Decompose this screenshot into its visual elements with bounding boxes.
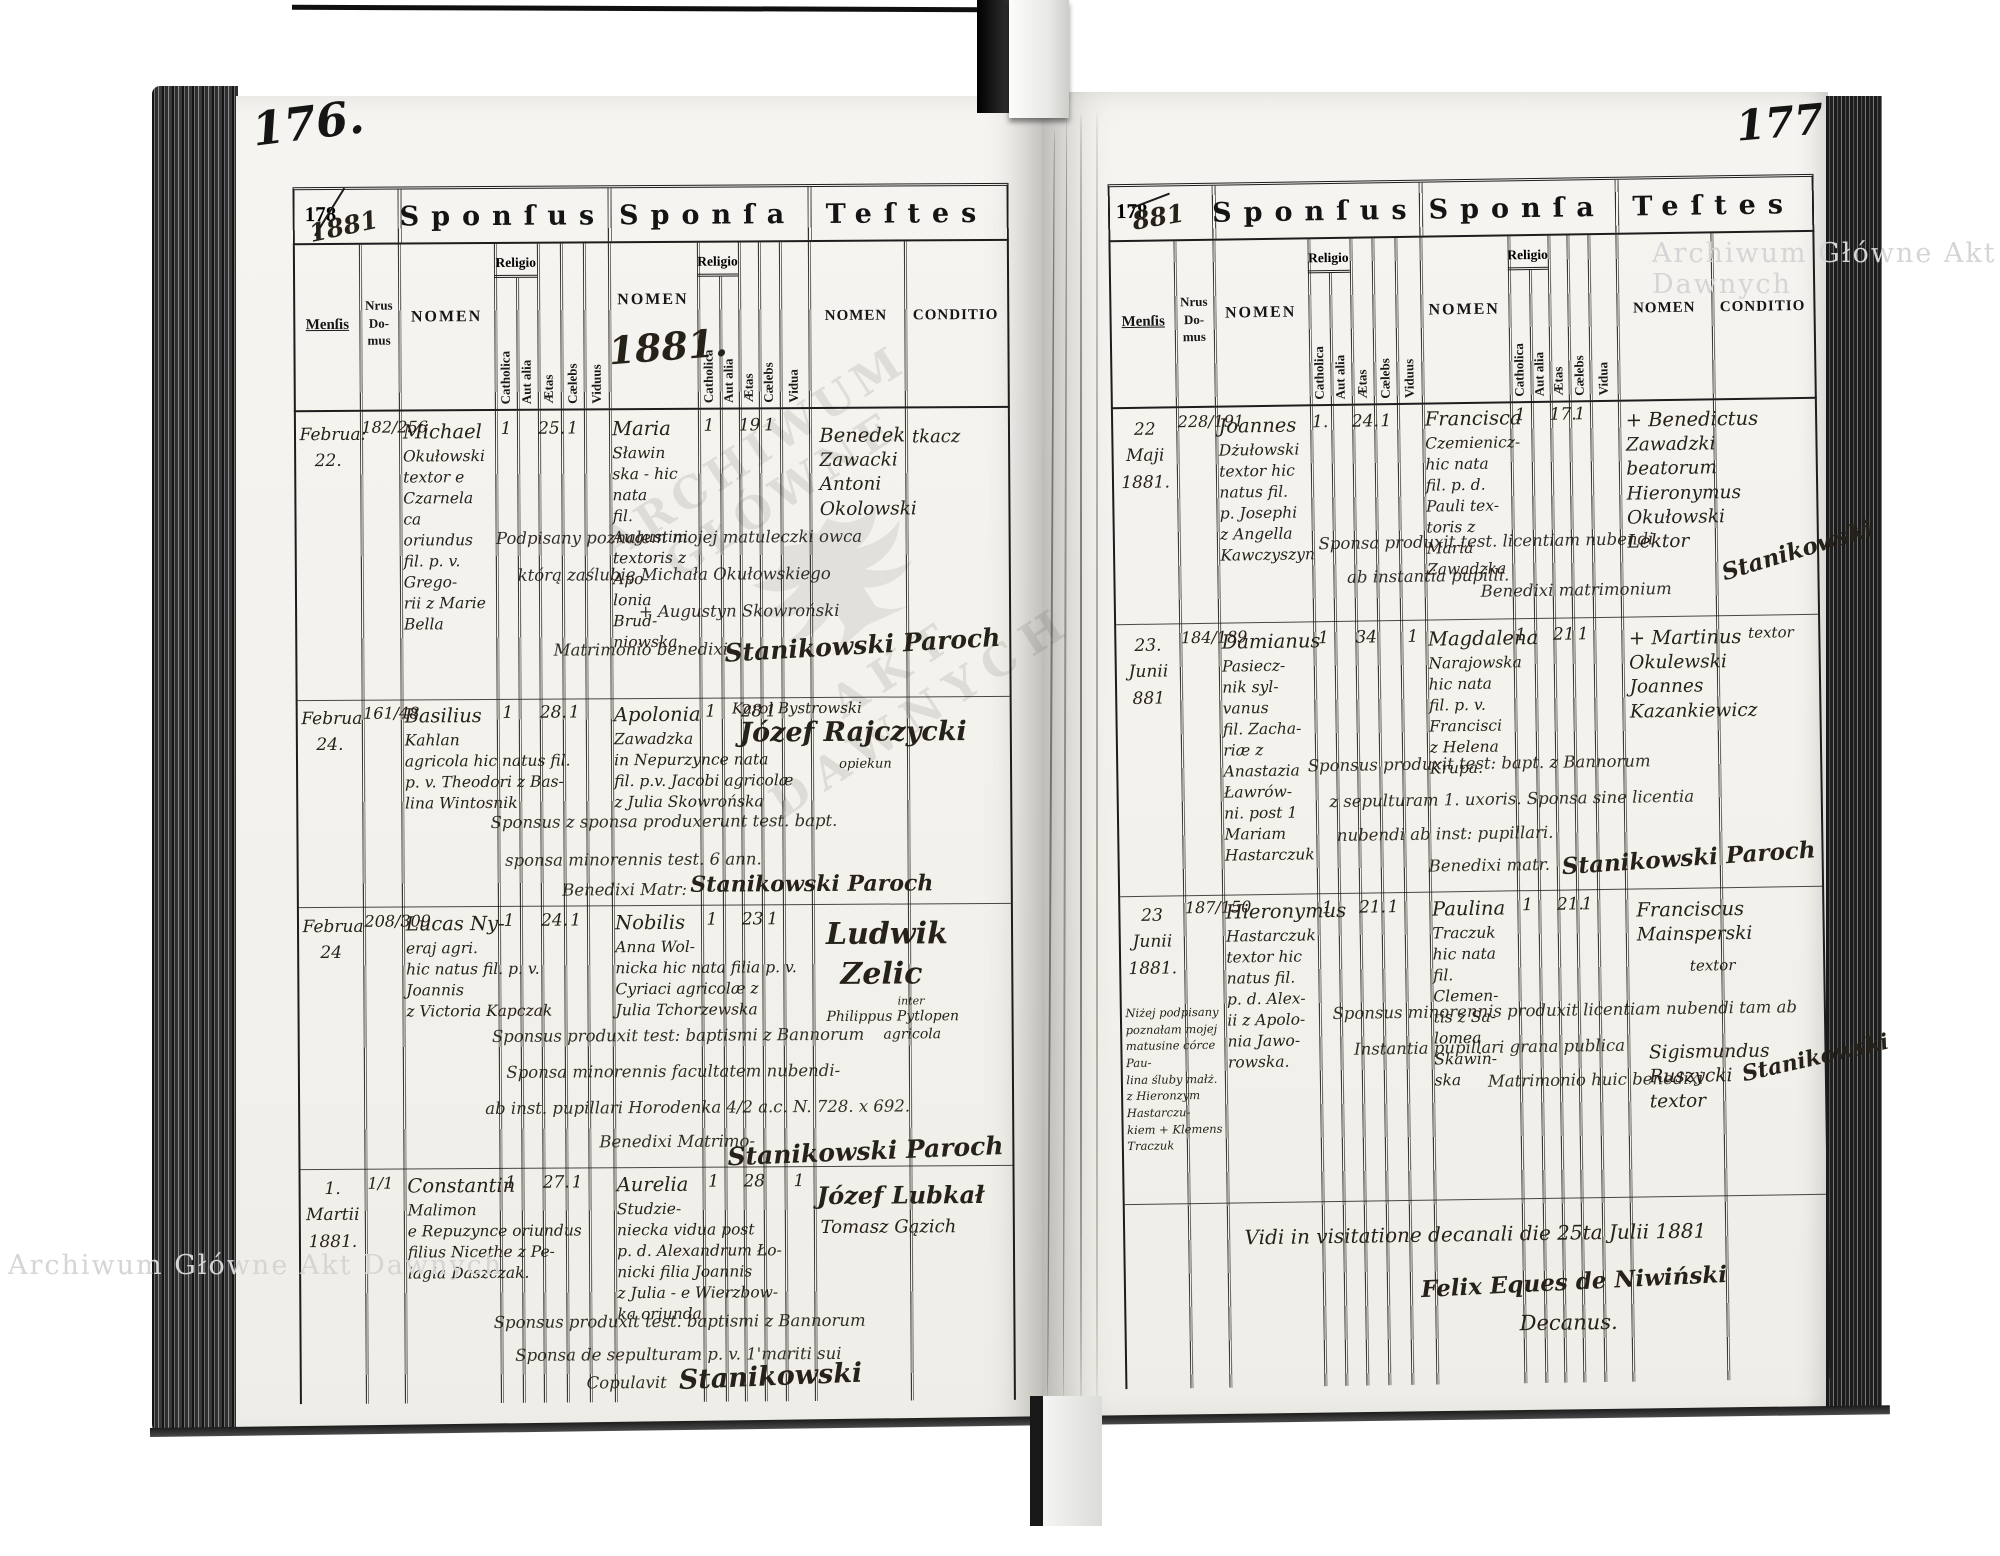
entry-house-number: 161/48 bbox=[363, 704, 400, 723]
left-page: 178 1881 Sponſus Sponſa Teſtes Menſis Nr… bbox=[292, 98, 1016, 1422]
aetas-sponsus-label: Ætas bbox=[1354, 370, 1370, 399]
religio-sponsa-label: Religio bbox=[1507, 238, 1547, 271]
left-corner-cell: 178 1881 bbox=[295, 190, 399, 244]
entry-sponsus: Damianus Pasiecz- nik syl- vanus fil. Za… bbox=[1221, 628, 1314, 867]
book-left-page-edges bbox=[152, 86, 238, 1438]
marginal-note: z sepulturam 1. uxoris. Sponsa sine lice… bbox=[1329, 787, 1694, 811]
mark-aetas-sponsa: 23 bbox=[742, 909, 762, 929]
photo-background bbox=[137, 1413, 1902, 1556]
dean-title: Decanus. bbox=[1519, 1310, 1617, 1335]
viduus-label: Viduus bbox=[588, 364, 604, 403]
nomen-sponsus-label: NOMEN bbox=[398, 308, 494, 327]
column-rule bbox=[398, 245, 402, 410]
vidua-label: Vidua bbox=[1596, 361, 1612, 395]
caelebs-sponsa-label: Cælebs bbox=[761, 362, 777, 403]
catholica-label: Catholica bbox=[1511, 343, 1528, 397]
priest-signature: Stanikowski Paroch bbox=[690, 870, 933, 897]
mark-aetas-sponsus: 27. bbox=[543, 1173, 566, 1193]
house-number-label: Nrus Do- mus bbox=[359, 297, 398, 350]
entry-sponsus: Michael Okułowski textor e Czarnela ca o… bbox=[403, 419, 495, 636]
mark-vidua-sponsa: 1 bbox=[785, 1171, 814, 1191]
marginal-note: Sponsus produxit test: baptismi z Bannor… bbox=[492, 1025, 864, 1046]
mark-caelebs-sponsa: 1 bbox=[1569, 404, 1590, 424]
mark-catholica-sponsa: 1. bbox=[1513, 625, 1534, 645]
entry-testes-signature: Ludwik bbox=[826, 916, 948, 952]
nomen-testes-label: NOMEN bbox=[1617, 299, 1712, 317]
marginal-note: Sponsus minorennis produxit licentiam nu… bbox=[1332, 997, 1797, 1023]
mark-catholica-sponsus: 1 bbox=[1317, 898, 1338, 918]
caelebs-sponsus-label: Cælebs bbox=[1377, 358, 1394, 399]
aetas-sponsa-label: Ætas bbox=[1551, 367, 1567, 396]
mark-aetas-sponsus: 34 bbox=[1355, 627, 1378, 647]
photo-top-edge bbox=[292, 5, 982, 12]
mark-catholica-sponsa: 1 bbox=[1510, 405, 1531, 425]
mark-aetas-sponsus: 28. bbox=[540, 703, 563, 723]
margin-declaration-note: Niżej podpisany poznałam mojej matusine … bbox=[1125, 1004, 1224, 1155]
right-corner-cell: 178 881 bbox=[1110, 186, 1213, 241]
mark-catholica-sponsus: 1 bbox=[498, 911, 519, 931]
marginal-note: ab inst. pupillari Horodenka 4/2 a.c. N.… bbox=[485, 1096, 910, 1118]
religio-sponsus-label: Religio bbox=[494, 246, 537, 278]
marginal-note: nubendi ab inst: pupillari. bbox=[1337, 823, 1554, 845]
left-header-band: 178 1881 Sponſus Sponſa Teſtes bbox=[292, 183, 1008, 245]
testes-header: Teſtes bbox=[807, 198, 1007, 230]
mark-caelebs-sponsus: 1 bbox=[565, 1172, 589, 1192]
sponsa-header: Sponſa bbox=[1419, 192, 1616, 226]
mark-catholica-sponsa: 1 bbox=[1517, 895, 1538, 915]
mark-catholica-sponsa: 1 bbox=[703, 1172, 724, 1192]
viduus-label: Viduus bbox=[1401, 358, 1418, 398]
gutter-fold-line bbox=[1096, 112, 1098, 1407]
mark-catholica-sponsa: 1 bbox=[698, 416, 719, 436]
entry-testes-second: Tomasz Gązich bbox=[821, 1216, 957, 1238]
mark-catholica-sponsa: 1 bbox=[701, 910, 722, 930]
entry-sponsa: Aurelia Studzie- niecka vidua post p. d.… bbox=[617, 1171, 810, 1325]
house-number-label: Nrus Do- mus bbox=[1174, 293, 1213, 346]
mark-aetas-sponsa: 17. bbox=[1550, 404, 1570, 424]
sponsus-header: Sponſus bbox=[1212, 195, 1420, 229]
entry-testes-note: inter bbox=[898, 994, 925, 1007]
mark-viduus-sponsus: 1 bbox=[1400, 627, 1425, 647]
book-strap-shadow bbox=[1030, 1396, 1043, 1526]
dean-signature: Felix Eques de Niwiński bbox=[1420, 1261, 1727, 1303]
right-header-band: 178 881 Sponſus Sponſa Teſtes bbox=[1108, 174, 1815, 242]
mark-caelebs-sponsus: 1 bbox=[564, 910, 588, 930]
entry-house-number: 184/189 bbox=[1181, 628, 1218, 648]
entry-mensis: Februa 24. bbox=[301, 706, 358, 759]
entry-testes-role: agricola bbox=[883, 1026, 941, 1042]
book-strap bbox=[1043, 1396, 1102, 1526]
mark-caelebs-sponsus: 1 bbox=[561, 418, 585, 438]
marginal-note: Sponsa minorennis facultatem nubendi- bbox=[506, 1061, 840, 1082]
marginal-note: Sponsa produxit test. licentiam nubendi bbox=[1318, 529, 1653, 553]
mark-aetas-sponsa: 21 bbox=[1553, 624, 1573, 644]
row-separator bbox=[300, 1165, 1012, 1170]
marginal-note: Sponsus produxit test. baptismi z Bannor… bbox=[494, 1311, 866, 1332]
archive-watermark-top-right: Archiwum Główne Akt Dawnych bbox=[1652, 238, 2000, 300]
entry-mensis: Februa: 22. bbox=[299, 422, 356, 475]
mark-aetas-sponsus: 24. bbox=[1352, 411, 1375, 431]
entry-house-number: 1/1 bbox=[367, 1174, 403, 1193]
marginal-note: Instantia pupillari grana publica bbox=[1354, 1036, 1625, 1059]
entry-sponsus: Joannes Dżułowski textor hic natus fil. … bbox=[1218, 412, 1310, 566]
entry-conditio: textor bbox=[1690, 956, 1736, 975]
sponsus-header: Sponſus bbox=[398, 200, 608, 232]
mark-caelebs-sponsa: 1 bbox=[762, 909, 783, 929]
nomen-sponsa-label: NOMEN bbox=[1420, 300, 1508, 319]
mark-aetas-sponsa: 28 bbox=[743, 1171, 763, 1191]
book-strap-shadow bbox=[977, 0, 1009, 113]
catholica-label: Catholica bbox=[700, 349, 716, 403]
nomen-testes-label: NOMEN bbox=[808, 307, 904, 325]
archive-watermark-bottom-left: Archiwum Główne Akt Dawnych bbox=[8, 1250, 503, 1281]
mark-aetas-sponsus: 25. bbox=[538, 419, 561, 439]
caelebs-sponsus-label: Cælebs bbox=[564, 363, 580, 404]
religio-sponsus-label: Religio bbox=[1307, 241, 1350, 274]
mark-caelebs-sponsus: 1 bbox=[1381, 897, 1404, 917]
religio-sponsa-label: Religio bbox=[697, 244, 738, 276]
mensis-label: Menſis bbox=[1112, 313, 1175, 331]
catholica-label: Catholica bbox=[498, 350, 514, 404]
entry-conditio: textor bbox=[1748, 623, 1794, 642]
nomen-sponsa-label: NOMEN bbox=[608, 291, 697, 310]
entry-house-number: 208/309 bbox=[364, 912, 401, 931]
aetas-sponsa-label: Ætas bbox=[740, 373, 756, 402]
entry-mensis: 23. Junii 881 bbox=[1120, 632, 1177, 712]
entry-mensis: 1. Martii 1881. bbox=[304, 1176, 361, 1255]
entry-testes: Franciscus Mainsperski bbox=[1636, 896, 1735, 948]
mark-catholica-sponsus: 1 bbox=[500, 1173, 521, 1193]
mark-caelebs-sponsus: 1 bbox=[563, 702, 587, 722]
entry-house-number: 182/256 bbox=[361, 418, 398, 437]
catholica-label: Catholica bbox=[1311, 346, 1328, 400]
entry-testes-signature: Józef Lubkał bbox=[817, 1180, 985, 1210]
entry-mensis: 22 Maji 1881. bbox=[1117, 416, 1174, 496]
mark-aetas-sponsa: 21. bbox=[1557, 894, 1577, 914]
row-separator bbox=[1125, 1194, 1827, 1205]
aut-alia-label: Aut alia bbox=[1332, 354, 1349, 399]
mark-caelebs-sponsus: 1 bbox=[1374, 411, 1397, 431]
mark-catholica-sponsus: 1. bbox=[1310, 412, 1331, 432]
aut-alia-label: Aut alia bbox=[1531, 351, 1548, 396]
book-strap bbox=[1009, 0, 1069, 118]
mark-catholica-sponsus: 1 bbox=[497, 703, 518, 723]
mark-catholica-sponsus: 1 bbox=[1313, 628, 1334, 648]
marginal-note: Copulavit bbox=[587, 1373, 667, 1392]
mark-catholica-sponsus: 1 bbox=[495, 419, 516, 439]
right-table-body: 22 Maji 1881. 228/191 Joannes Dżułowski … bbox=[1111, 399, 1831, 1389]
entry-house-number: 228/191 bbox=[1178, 412, 1215, 432]
nomen-sponsus-label: NOMEN bbox=[1213, 303, 1308, 322]
gutter-fold-line bbox=[1080, 115, 1082, 1405]
aut-alia-label: Aut alia bbox=[721, 358, 737, 403]
sponsa-header: Sponſa bbox=[608, 199, 808, 231]
entry-mensis: Februa 24 bbox=[302, 914, 359, 967]
marginal-note: Benedixi matrimonium bbox=[1481, 579, 1672, 601]
aetas-sponsus-label: Ætas bbox=[541, 375, 557, 404]
mark-caelebs-sponsa: 1 bbox=[1576, 894, 1597, 914]
marginal-note: Sponsus produxit test: bapt. z Bannorum bbox=[1308, 751, 1651, 775]
entry-testes-signature: Zelic bbox=[840, 956, 922, 992]
sponsa-year-handwritten: 1881. bbox=[607, 322, 699, 374]
entry-sponsa: Paulina Traczuk hic nata fil. Clemen- ti… bbox=[1432, 895, 1519, 1091]
marginal-note: Matrimonio huic benedixi bbox=[1488, 1069, 1704, 1091]
entry-sponsus: Hieronymus Hastarczuk textor hic natus f… bbox=[1226, 898, 1318, 1073]
mark-caelebs-sponsa: 1 bbox=[1572, 624, 1593, 644]
entry-house-number: 187/150 bbox=[1185, 898, 1222, 918]
conditio-label: CONDITIO bbox=[1712, 298, 1814, 317]
mark-aetas-sponsus: 21. bbox=[1359, 897, 1382, 917]
marginal-note: sponsa minorennis test. 6 ann. bbox=[505, 849, 762, 870]
decanal-visitation-note: Vidi in visitatione decanali die 25ta Ju… bbox=[1244, 1219, 1706, 1250]
marginal-note: Benedixi Matr: bbox=[562, 880, 687, 900]
entry-mensis: 23 Junii 1881. bbox=[1124, 902, 1181, 982]
priest-signature: Stanikowski bbox=[679, 1358, 864, 1396]
row-separator bbox=[299, 903, 1011, 908]
entry-sponsa: Francisca Czemienicz- hic nata fil. p. d… bbox=[1425, 405, 1512, 580]
aut-alia-label: Aut alia bbox=[519, 359, 535, 404]
mark-aetas-sponsus: 24. bbox=[541, 911, 564, 931]
caelebs-sponsa-label: Cælebs bbox=[1571, 355, 1588, 396]
mensis-label: Menſis bbox=[295, 317, 359, 334]
right-page-number: 177 bbox=[1734, 94, 1826, 150]
marginal-note: Benedixi matr. bbox=[1428, 855, 1550, 876]
testes-header: Teſtes bbox=[1615, 189, 1812, 223]
entry-testes-second: Philippus Pytlopen bbox=[826, 1008, 959, 1025]
